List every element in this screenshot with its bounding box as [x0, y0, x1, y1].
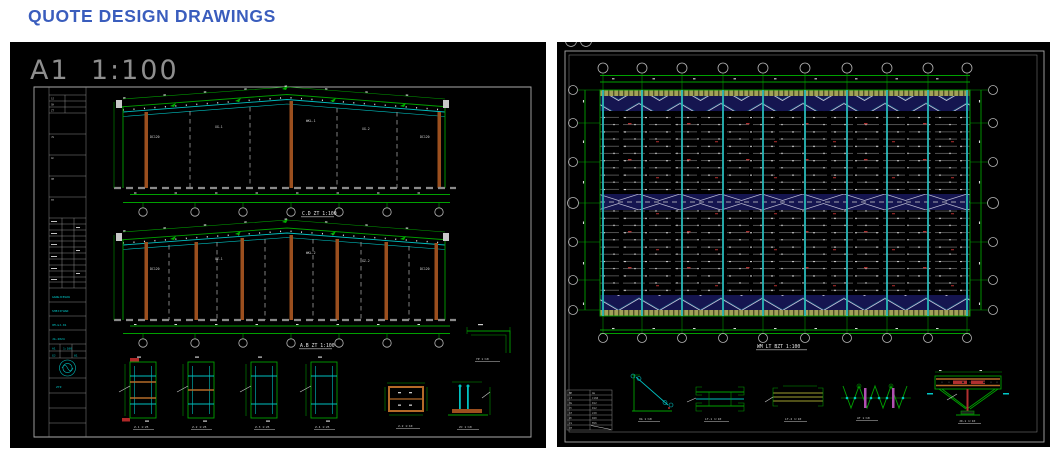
section-flag-icon: [170, 219, 406, 240]
column-base-detail: ZJ 1:10: [448, 382, 490, 430]
schedule-cell: XG: [569, 401, 573, 405]
left-drawing-sheet: A1 1:100 SJ SH ZT JS GC XM TH GANGJIEGOU…: [10, 42, 546, 448]
schedule-header: GG: [592, 391, 596, 395]
titleblock-cell: GJ: [52, 354, 56, 358]
column-section-details: Z-1 1:25 Z-2 1:25 Z-3 1:25: [119, 357, 337, 430]
titleblock-cell: 01: [74, 354, 78, 358]
elevation-1: DC120 XG-1 WKL-1 XG-2 DC120 C.D ZT 1:100: [114, 86, 456, 217]
titleblock-entry: XM-GJ-01: [52, 323, 67, 327]
schedule-cell: LS: [569, 421, 573, 425]
section-label: Z-2 1:25: [192, 425, 207, 429]
titleblock-row: SJ: [51, 97, 55, 101]
grid-bubbles: [139, 203, 443, 217]
detail-label: XG 1:10: [639, 417, 652, 421]
schedule-cell: AT: [569, 411, 573, 415]
schedule-cell: C160: [592, 396, 599, 400]
detail-label: LT-1 1:10: [705, 417, 721, 421]
titleblock-entry: JG-2024: [52, 337, 65, 341]
member-label: XG-2: [362, 127, 370, 131]
purlin-detail-a: LT-1 1:10: [687, 387, 744, 422]
member-label: DC120: [150, 267, 160, 271]
detail-label: ZJ 1:10: [459, 425, 472, 429]
grid-bubbles-top: [598, 63, 972, 90]
schedule-cell: D20: [592, 416, 597, 420]
sheet-format-label: A1 1:100: [30, 55, 179, 86]
titleblock-box-label: XM: [51, 177, 55, 181]
titleblock-box-label: TH: [51, 198, 55, 202]
plan-title: WM LT BZT 1:100: [757, 344, 800, 350]
titleblock-box-label: JS: [51, 135, 55, 139]
roof-bracing-bottom: [600, 295, 970, 310]
member-label: GZ-1: [215, 257, 223, 261]
titleblock-entry: SHEJIYUAN: [52, 309, 68, 313]
roof-plan: [600, 90, 970, 316]
schedule-cell: D12: [592, 401, 597, 405]
apex-node-detail: JD-1 1:10: [927, 371, 1009, 424]
titleblock-cell: 1:100: [63, 347, 72, 351]
schedule-cell: ZC: [569, 416, 573, 420]
member-label: WKL-2: [306, 251, 316, 255]
detail-label: JD-1 1:10: [959, 419, 975, 423]
canopy-detail: YP 1:10: [467, 324, 510, 362]
brace-detail: XG 1:10: [631, 374, 673, 422]
member-label: WKL-1: [306, 119, 316, 123]
member-label: DC120: [420, 135, 430, 139]
member-label: DC120: [150, 135, 160, 139]
section-label: Z-1 1:25: [134, 425, 149, 429]
member-label: GZ-2: [362, 259, 370, 263]
detail-label: LT-2 1:10: [785, 417, 801, 421]
titleblock-stamp-text: ZYZ: [56, 385, 62, 389]
company-stamp-icon: [60, 360, 76, 376]
titleblock-cell: A1: [52, 347, 56, 351]
purlin-detail-b: LT-2 1:10: [765, 386, 823, 422]
purlin-schedule-table: BH GG LT C160 XG D12 YC D12 AT L50 ZC D2…: [567, 390, 612, 430]
schedule-cell: YC: [569, 406, 573, 410]
sag-rod-detail: AT 1:10: [841, 384, 911, 421]
beam-section-detail: 2-2 1:10: [385, 383, 427, 429]
schedule-cell: M16: [592, 421, 597, 425]
schedule-cell: L50: [592, 411, 597, 415]
steel-columns: [145, 235, 439, 320]
titleblock-entry: GANGJIEGOU: [52, 295, 70, 299]
schedule-header: BH: [569, 391, 573, 395]
roof-bracing-top: [600, 96, 970, 111]
titleblock-row: ZT: [51, 109, 55, 113]
schedule-cell: LT: [569, 396, 573, 400]
member-label: XG-1: [215, 125, 223, 129]
detail-label: 2-2 1:10: [398, 424, 413, 428]
eave-strip-bottom: [600, 310, 970, 316]
left-sheet-svg: A1 1:100 SJ SH ZT JS GC XM TH GANGJIEGOU…: [10, 42, 546, 448]
eave-strip-top: [600, 90, 970, 96]
page-title: QUOTE DESIGN DRAWINGS: [28, 6, 276, 27]
title-block: SJ SH ZT JS GC XM TH GANGJIEGOU SHEJIYUA…: [34, 87, 531, 437]
elevation-1-title: C.D ZT 1:100: [302, 211, 337, 217]
grid-bubbles-bottom: [599, 316, 972, 343]
elevation-2: DC120 GZ-1 WKL-2 GZ-2 DC120 A.B ZT 1:100: [114, 219, 456, 349]
grid-bubbles-right: [970, 86, 999, 315]
section-label: Z-3 1:25: [255, 425, 270, 429]
section-label: Z-4 1:25: [315, 425, 330, 429]
steel-columns: [145, 101, 442, 188]
detail-label: YP 1:10: [476, 357, 489, 361]
grid-bubbles-left: [568, 86, 601, 315]
right-drawing-sheet: WM LT BZT 1:100 BH GG LT C160 XG D12 YC …: [557, 42, 1050, 447]
member-label: DC120: [420, 267, 430, 271]
titleblock-box-label: GC: [51, 156, 55, 160]
grid-bubbles: [139, 334, 443, 348]
schedule-cell: D12: [592, 406, 597, 410]
detail-label: AT 1:10: [857, 416, 870, 420]
schedule-cell: QT: [569, 426, 573, 430]
elevation-2-title: A.B ZT 1:100: [300, 343, 335, 349]
right-sheet-svg: WM LT BZT 1:100 BH GG LT C160 XG D12 YC …: [557, 42, 1050, 447]
titleblock-row: SH: [51, 103, 55, 107]
